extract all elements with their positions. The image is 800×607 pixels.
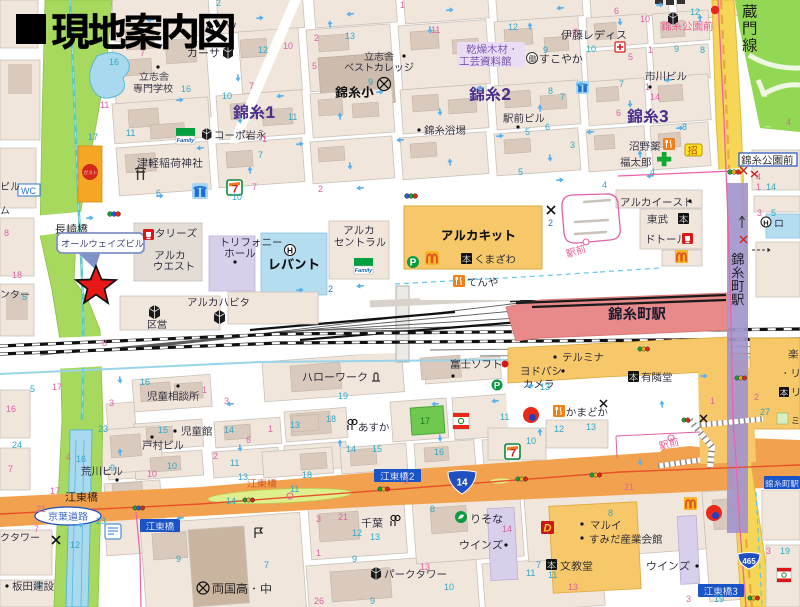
svg-text:14: 14 bbox=[650, 92, 660, 102]
svg-text:2: 2 bbox=[404, 476, 409, 486]
svg-text:10: 10 bbox=[526, 436, 536, 446]
svg-text:10: 10 bbox=[640, 14, 650, 24]
svg-text:16: 16 bbox=[181, 84, 191, 94]
svg-text:5: 5 bbox=[30, 384, 35, 394]
svg-text:1: 1 bbox=[710, 396, 715, 406]
svg-text:6: 6 bbox=[545, 122, 550, 132]
svg-text:9: 9 bbox=[370, 596, 375, 606]
svg-text:12: 12 bbox=[70, 540, 80, 550]
svg-text:WC: WC bbox=[21, 186, 36, 196]
svg-text:19: 19 bbox=[780, 546, 790, 556]
svg-text:11: 11 bbox=[230, 458, 239, 468]
svg-text:8: 8 bbox=[700, 45, 705, 55]
svg-text:13: 13 bbox=[345, 31, 355, 41]
svg-text:H: H bbox=[287, 247, 293, 256]
svg-text:11: 11 bbox=[288, 112, 297, 122]
svg-text:7: 7 bbox=[249, 81, 254, 91]
svg-text:23: 23 bbox=[98, 424, 108, 434]
svg-text:Family: Family bbox=[177, 138, 195, 144]
svg-text:11: 11 bbox=[100, 100, 109, 110]
svg-text:9: 9 bbox=[110, 463, 115, 473]
svg-text:18: 18 bbox=[12, 270, 22, 280]
svg-text:5: 5 bbox=[525, 127, 530, 137]
svg-text:2: 2 bbox=[216, 0, 221, 8]
svg-text:16: 16 bbox=[6, 404, 16, 414]
svg-text:9: 9 bbox=[674, 44, 679, 54]
svg-text:2: 2 bbox=[754, 392, 759, 402]
svg-text:11: 11 bbox=[526, 568, 535, 578]
svg-text:9: 9 bbox=[352, 554, 357, 564]
svg-text:7: 7 bbox=[536, 560, 541, 570]
svg-text:4: 4 bbox=[66, 452, 71, 462]
svg-text:13: 13 bbox=[420, 562, 430, 572]
svg-text:21: 21 bbox=[36, 504, 46, 514]
svg-text:3: 3 bbox=[109, 398, 114, 408]
svg-text:18: 18 bbox=[326, 414, 336, 424]
svg-text:1: 1 bbox=[268, 424, 273, 434]
svg-text:D: D bbox=[544, 523, 552, 535]
svg-text:7: 7 bbox=[510, 448, 516, 460]
svg-text:13: 13 bbox=[586, 422, 596, 432]
svg-text:7: 7 bbox=[34, 524, 39, 534]
svg-text:13: 13 bbox=[568, 582, 578, 592]
svg-text:10: 10 bbox=[444, 582, 454, 592]
svg-text:12: 12 bbox=[554, 424, 564, 434]
svg-text:5: 5 bbox=[771, 208, 776, 218]
svg-text:7: 7 bbox=[619, 79, 624, 89]
svg-text:H: H bbox=[763, 218, 768, 227]
svg-text:3: 3 bbox=[757, 208, 762, 218]
svg-text:1: 1 bbox=[202, 385, 207, 395]
svg-text:13: 13 bbox=[290, 420, 300, 430]
svg-text:8: 8 bbox=[682, 122, 687, 132]
svg-text:5: 5 bbox=[22, 292, 27, 302]
svg-text:3: 3 bbox=[686, 594, 691, 604]
svg-text:5: 5 bbox=[518, 167, 523, 177]
svg-text:14: 14 bbox=[502, 524, 512, 534]
svg-text:12: 12 bbox=[690, 7, 700, 17]
svg-text:12: 12 bbox=[258, 45, 268, 55]
svg-text:17: 17 bbox=[420, 416, 430, 426]
svg-text:1: 1 bbox=[262, 134, 267, 144]
svg-text:2: 2 bbox=[314, 33, 319, 43]
svg-text:26: 26 bbox=[314, 596, 324, 606]
svg-text:15: 15 bbox=[372, 444, 382, 454]
svg-text:2: 2 bbox=[573, 27, 578, 37]
svg-text:Family: Family bbox=[355, 268, 373, 274]
svg-text:10: 10 bbox=[222, 91, 232, 101]
svg-text:10: 10 bbox=[147, 469, 157, 479]
svg-text:19: 19 bbox=[714, 594, 724, 604]
svg-text:2: 2 bbox=[318, 184, 323, 194]
svg-text:8: 8 bbox=[430, 504, 435, 514]
svg-text:17: 17 bbox=[50, 486, 60, 496]
svg-text:465: 465 bbox=[742, 557, 756, 566]
svg-text:11: 11 bbox=[431, 25, 440, 35]
svg-text:3: 3 bbox=[316, 514, 321, 524]
svg-text:5: 5 bbox=[312, 61, 317, 71]
svg-text:16: 16 bbox=[434, 447, 444, 457]
svg-text:10: 10 bbox=[232, 192, 242, 202]
svg-text:2: 2 bbox=[328, 284, 333, 294]
svg-text:2: 2 bbox=[213, 451, 218, 461]
svg-text:9: 9 bbox=[176, 554, 181, 564]
svg-text:19: 19 bbox=[338, 391, 348, 401]
svg-text:16: 16 bbox=[76, 454, 86, 464]
svg-text:8: 8 bbox=[102, 338, 107, 348]
svg-text:P: P bbox=[494, 380, 500, 390]
svg-text:11: 11 bbox=[500, 412, 509, 422]
svg-text:7: 7 bbox=[8, 464, 13, 474]
svg-text:27: 27 bbox=[760, 407, 770, 417]
svg-text:14: 14 bbox=[226, 496, 236, 506]
svg-text:12: 12 bbox=[352, 528, 362, 538]
svg-text:1: 1 bbox=[645, 82, 650, 92]
svg-text:21: 21 bbox=[338, 512, 348, 522]
svg-text:16: 16 bbox=[109, 57, 119, 67]
svg-text:13: 13 bbox=[370, 532, 380, 542]
svg-text:2: 2 bbox=[548, 218, 553, 228]
svg-text:8: 8 bbox=[4, 228, 9, 238]
svg-text:3: 3 bbox=[570, 140, 575, 150]
svg-text:11: 11 bbox=[548, 570, 557, 580]
svg-text:24: 24 bbox=[12, 440, 22, 450]
svg-text:9: 9 bbox=[368, 77, 373, 87]
svg-text:6: 6 bbox=[246, 435, 251, 445]
svg-text:9: 9 bbox=[543, 45, 548, 55]
svg-text:10: 10 bbox=[167, 461, 177, 471]
svg-text:15: 15 bbox=[158, 425, 168, 435]
svg-text:14: 14 bbox=[224, 425, 234, 435]
svg-text:4: 4 bbox=[786, 117, 791, 127]
svg-text:11: 11 bbox=[290, 484, 299, 494]
svg-text:7: 7 bbox=[560, 92, 565, 102]
svg-text:18: 18 bbox=[302, 470, 312, 480]
svg-text:1: 1 bbox=[756, 182, 761, 192]
svg-text:4: 4 bbox=[756, 172, 761, 182]
svg-text:1: 1 bbox=[316, 548, 321, 558]
svg-text:12: 12 bbox=[508, 22, 518, 32]
svg-text:8: 8 bbox=[608, 508, 613, 518]
svg-text:23: 23 bbox=[96, 516, 106, 526]
svg-text:8: 8 bbox=[548, 86, 553, 96]
svg-text:13: 13 bbox=[238, 472, 248, 482]
svg-text:14: 14 bbox=[766, 182, 776, 192]
svg-text:11: 11 bbox=[126, 128, 135, 138]
svg-text:6: 6 bbox=[616, 108, 621, 118]
svg-text:1: 1 bbox=[400, 0, 405, 10]
svg-text:13: 13 bbox=[540, 382, 550, 392]
svg-text:14: 14 bbox=[346, 444, 356, 454]
svg-text:7: 7 bbox=[264, 560, 269, 570]
svg-text:7: 7 bbox=[252, 182, 257, 192]
svg-text:6: 6 bbox=[614, 6, 619, 16]
svg-text:10: 10 bbox=[283, 41, 293, 51]
svg-text:4: 4 bbox=[602, 180, 607, 190]
svg-text:17: 17 bbox=[88, 132, 98, 142]
svg-text:P: P bbox=[410, 258, 417, 269]
svg-text:14: 14 bbox=[456, 478, 468, 489]
svg-text:3: 3 bbox=[766, 546, 771, 556]
svg-text:1: 1 bbox=[648, 45, 653, 55]
svg-text:16: 16 bbox=[140, 377, 150, 387]
svg-text:5: 5 bbox=[628, 52, 633, 62]
svg-text:7: 7 bbox=[258, 150, 263, 160]
svg-text:10: 10 bbox=[586, 44, 596, 54]
svg-text:21: 21 bbox=[624, 482, 634, 492]
svg-text:17: 17 bbox=[52, 382, 62, 392]
